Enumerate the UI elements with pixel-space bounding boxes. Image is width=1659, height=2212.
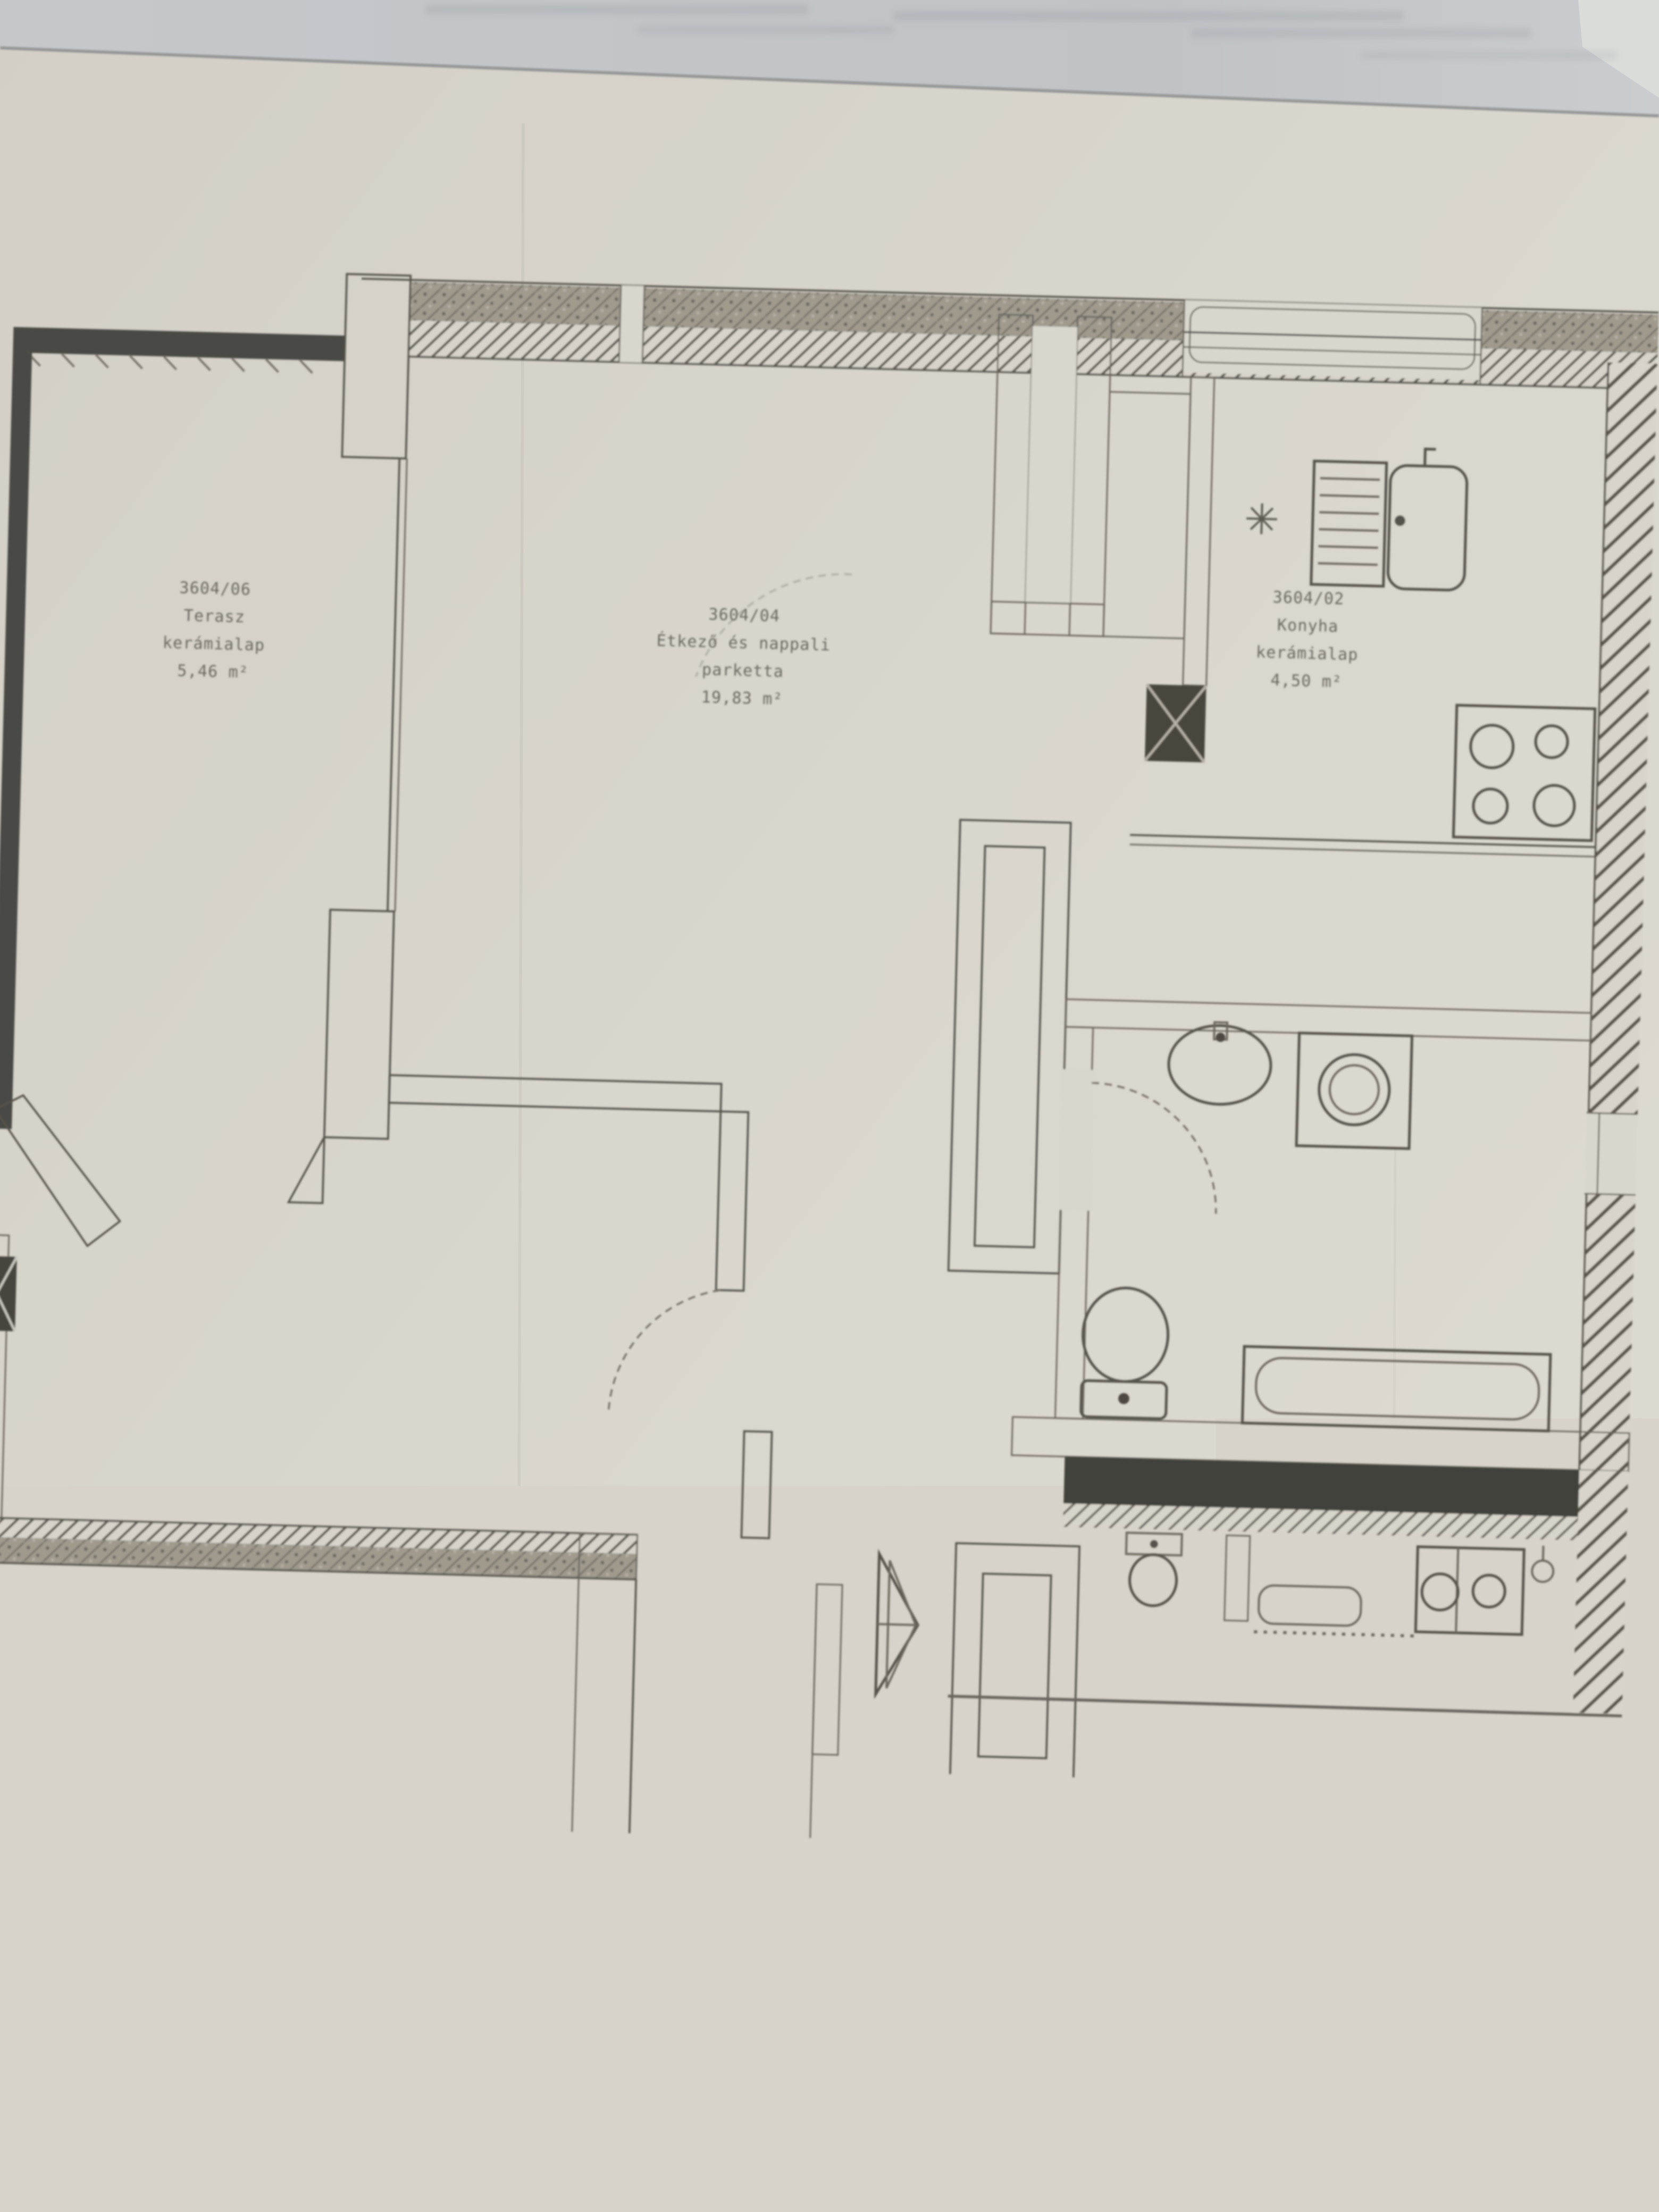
photo-vignette (0, 0, 1659, 2212)
scanned-floorplan-photo: ✳ (0, 0, 1659, 2212)
floorplan-canvas: ✳ (0, 0, 1659, 2212)
